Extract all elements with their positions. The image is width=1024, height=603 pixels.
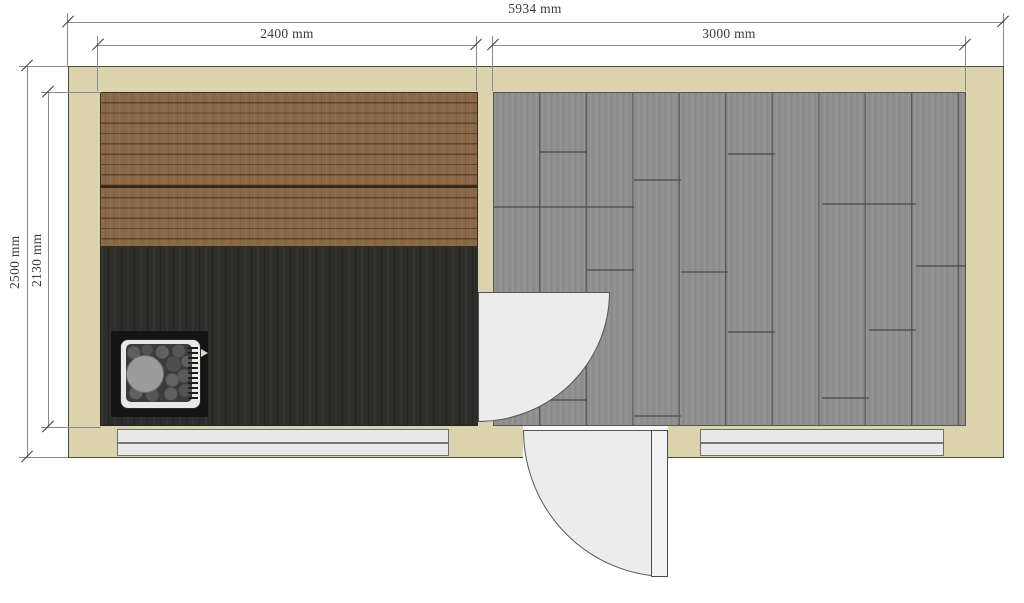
dim-label-overall-depth: 2500 mm — [7, 212, 23, 312]
plank-joint — [869, 329, 916, 331]
heater-body — [120, 339, 201, 409]
plank-joint — [540, 151, 587, 153]
plank-joint — [822, 203, 916, 205]
dim-line-right-room-width — [493, 45, 965, 46]
dim-line-interior-depth — [48, 92, 49, 427]
plank-joint — [822, 397, 869, 399]
dim-line-overall-width — [68, 22, 1003, 23]
dim-ext-line — [41, 92, 101, 93]
exterior-door-swing — [523, 430, 668, 577]
plank-joint — [728, 153, 775, 155]
plank-joint — [728, 331, 775, 333]
dim-label-overall-width: 5934 mm — [485, 1, 585, 17]
dim-label-left-room-width: 2400 mm — [237, 26, 337, 42]
sauna-bench-upper — [100, 92, 478, 186]
sauna-bench-lower — [100, 186, 478, 247]
window-mullion — [701, 442, 943, 444]
window-front-right — [700, 429, 944, 456]
heater-pointer-icon — [201, 349, 208, 357]
window-mullion — [118, 442, 448, 444]
sauna-heater — [111, 331, 208, 417]
dim-line-left-room-width — [98, 45, 476, 46]
plank-joint — [634, 415, 681, 417]
plank-joint — [634, 179, 681, 181]
plank-joint — [587, 269, 634, 271]
dim-label-interior-depth: 2130 mm — [29, 210, 45, 310]
dim-label-right-room-width: 3000 mm — [679, 26, 779, 42]
heater-vent-grille — [188, 347, 198, 401]
window-front-left — [117, 429, 449, 456]
plank-joint — [494, 206, 634, 208]
floor-plan-canvas: 5934 mm 2400 mm 3000 mm 2500 mm 2130 mm — [0, 0, 1024, 603]
exterior-door-leaf — [651, 430, 668, 577]
plank-joint — [681, 271, 728, 273]
dim-ext-line — [41, 427, 101, 428]
plank-joint — [916, 265, 966, 267]
heater-tank-circle — [126, 355, 164, 393]
dim-line-overall-depth — [27, 66, 28, 457]
